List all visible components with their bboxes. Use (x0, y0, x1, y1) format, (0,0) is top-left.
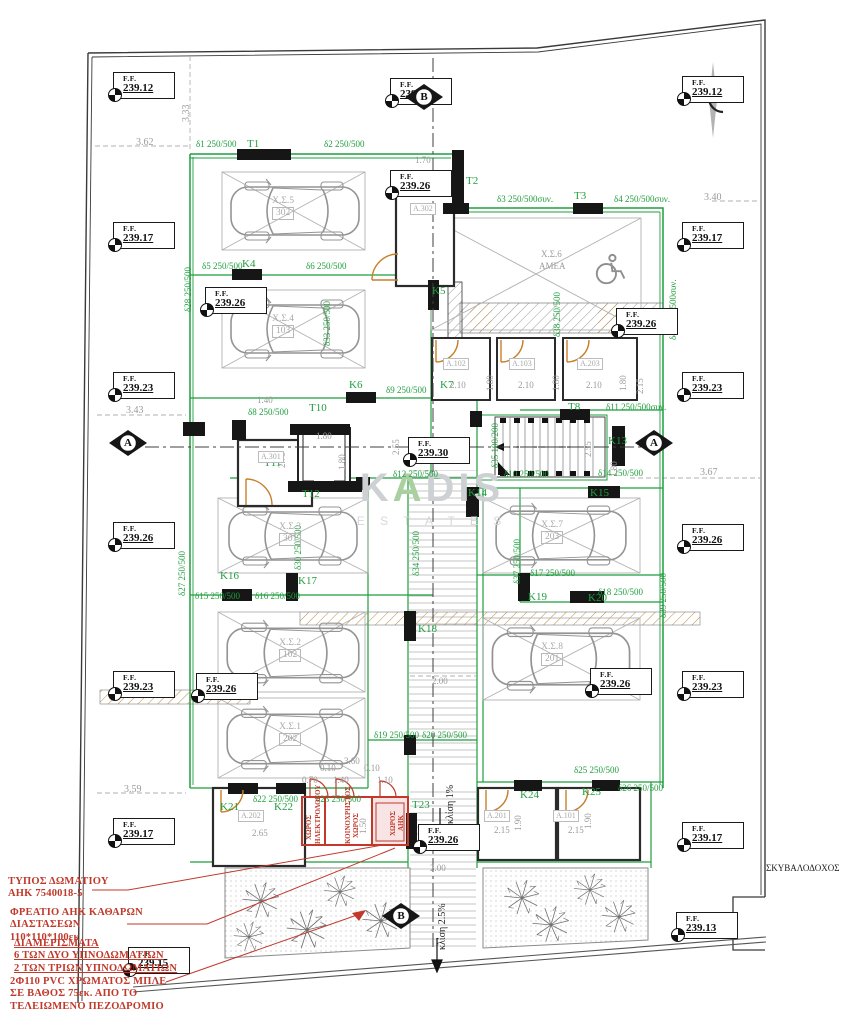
plan-text: ΣΚΥΒΑΛΟΔΟΧΟΣ (766, 864, 840, 873)
plan-text: K22 (274, 802, 293, 813)
ff-value: 239.12 (692, 87, 722, 99)
plan-text: δ1 250/500 (196, 140, 237, 149)
plan-text: 1.80 (316, 432, 332, 441)
section-marker-letter: B (397, 910, 404, 922)
ff-marker-text: F.F. 239.12 (692, 79, 722, 98)
plan-text: 2.55 (584, 441, 593, 457)
red-annotation-line: ΑΗΚ 7540018-5 (8, 888, 109, 900)
ff-elevation-marker: F.F. 239.23 (682, 671, 744, 698)
ff-elevation-marker: F.F. 239.30 (408, 437, 470, 464)
ff-elevation-marker: F.F. 239.17 (682, 222, 744, 249)
ff-elevation-marker: F.F. 239.17 (113, 222, 175, 249)
ff-marker-text: F.F. 239.23 (692, 375, 722, 394)
ff-marker-text: F.F. 239.12 (123, 75, 153, 94)
red-annotation-line: ΔΙΑΣΤΑΣΕΩΝ (10, 919, 143, 931)
plan-text: δ4 250/500συν. (614, 195, 670, 204)
plan-text: K13 (608, 436, 627, 447)
plan-text: δ6 250/500 (306, 262, 347, 271)
plan-text: ΚΟΙΝΟΧΡΗΣΤΟΣ (345, 786, 352, 844)
ff-elevation-marker: F.F. 239.12 (682, 76, 744, 103)
plan-text: δ5 250/500 (202, 262, 243, 271)
plan-text: 1.90 (584, 813, 593, 829)
plan-text: δ17 250/500 (530, 569, 575, 578)
parking-space-label: Χ.Σ.7 203 (541, 520, 563, 544)
plan-text: 0.70 (302, 776, 318, 785)
red-annotation-line: 6 ΤΩΝ ΔΥΟ ΥΠΝΟΔΩΜΑΤΙΩΝ (14, 950, 177, 962)
plan-text: 0.10 (364, 764, 380, 773)
ff-value: 239.23 (692, 383, 722, 395)
ff-marker-text: F.F. 239.30 (418, 440, 448, 459)
plan-text: 2.00 (432, 677, 448, 686)
plan-text: 3.59 (124, 785, 142, 795)
plan-text: δ12 250/500 (393, 470, 438, 479)
plan-text: T10 (309, 403, 327, 414)
plan-text: δ27 250/500 (178, 551, 187, 596)
plan-text: ΑΜΕΑ (539, 262, 566, 271)
ff-marker-text: F.F. 239.13 (686, 915, 716, 934)
plan-text: ΑΗΚ (398, 815, 405, 831)
plan-text: 1.50 (359, 818, 368, 834)
ff-value: 239.17 (692, 833, 722, 845)
plan-text: K16 (220, 571, 239, 582)
plan-text: κλίση 1% (446, 785, 456, 824)
ff-elevation-marker: F.F. 239.26 (616, 308, 678, 335)
ff-value: 239.12 (123, 83, 153, 95)
ff-elevation-marker: F.F. 239.26 (682, 524, 744, 551)
plan-text: δ38 250/500 (553, 292, 562, 337)
plan-text: 2.10 (450, 381, 466, 390)
survey-point-icon (108, 687, 122, 701)
room-label: A.202 (238, 810, 264, 822)
ff-value: 239.23 (123, 383, 153, 395)
plan-text: δ2 250/500 (324, 140, 365, 149)
parking-space-label: Χ.Σ.8 201 (541, 642, 563, 666)
plan-text: κλίση 2.5% (438, 903, 448, 950)
parking-space-number: 301 (279, 533, 301, 545)
ff-value: 239.17 (123, 829, 153, 841)
plan-text: ΧΩΡΟΣ (353, 813, 360, 838)
plan-text: 3.33 (182, 105, 192, 123)
plan-text: K15 (590, 488, 609, 499)
plan-text: K4 (242, 259, 255, 270)
survey-point-icon (677, 238, 691, 252)
parking-space-number: 202 (279, 733, 301, 745)
plan-text: 3.62 (136, 138, 154, 148)
section-marker-letter: A (650, 437, 658, 449)
ff-elevation-marker: F.F. 239.17 (682, 822, 744, 849)
red-annotation-line: 2Φ110 PVC ΧΡΩΜΑΤΟΣ ΜΠΛΕ (10, 976, 167, 988)
room-label: A.102 (443, 358, 469, 370)
plan-text: δ33 250/500 (323, 301, 332, 346)
plan-text: 3.43 (126, 406, 144, 416)
plan-text: ΧΩΡΟΣ (306, 815, 313, 840)
plan-text: T1 (247, 139, 259, 150)
section-marker: A (634, 426, 674, 460)
parking-space-name: Χ.Σ.7 (541, 520, 563, 530)
section-marker: B (404, 80, 444, 114)
room-label: A.201 (484, 810, 510, 822)
parking-space-name: Χ.Σ.3 (279, 522, 301, 532)
plan-text: δ35 100/200 (491, 423, 500, 468)
survey-point-icon (403, 453, 417, 467)
parking-space-number: 102 (279, 649, 301, 661)
ff-marker-text: F.F. 239.26 (123, 525, 153, 544)
plan-text: δ11 250/500συν. (606, 403, 666, 412)
plan-text: T23 (412, 800, 430, 811)
room-label: A.301 (258, 451, 284, 463)
ff-value: 239.26 (428, 835, 458, 847)
parking-space-name: Χ.Σ.4 (272, 314, 294, 324)
survey-point-icon (677, 388, 691, 402)
plan-text: 3.60 (344, 757, 360, 766)
plan-text: K24 (520, 790, 539, 801)
red-annotation-line: ΣΕ ΒΑΘΟΣ 75εκ. ΑΠΟ ΤΟ (10, 988, 167, 1000)
plan-text: δ19 250/500 (374, 731, 419, 740)
ff-marker-text: F.F. 239.23 (123, 375, 153, 394)
plan-text: K5 (432, 286, 445, 297)
survey-point-icon (671, 928, 685, 942)
ff-elevation-marker: F.F. 239.26 (418, 824, 480, 851)
plan-text: δ28 250/500 (184, 267, 193, 312)
parking-space-label: Χ.Σ.1 202 (279, 722, 301, 746)
plan-text: 1.70 (415, 156, 431, 165)
plan-text: δ20 250/500 (422, 731, 467, 740)
plan-text: 3.40 (704, 193, 722, 203)
ff-marker-text: F.F. 239.26 (206, 676, 236, 695)
section-marker-letter: B (420, 91, 427, 103)
room-label: A.103 (509, 358, 535, 370)
survey-point-icon (677, 838, 691, 852)
parking-space-name: Χ.Σ.5 (272, 196, 294, 206)
parking-space-number: 302 (272, 207, 294, 219)
plan-text: K18 (418, 624, 437, 635)
plan-text: 2.10 (586, 381, 602, 390)
survey-point-icon (200, 303, 214, 317)
plan-text: 1.40 (333, 776, 349, 785)
plan-text: 2.10 (518, 381, 534, 390)
room-label: A.203 (577, 358, 603, 370)
plan-text: δ25 250/500 (574, 766, 619, 775)
red-annotation-line: 2 ΤΩΝ ΤΡΙΩΝ ΥΠΝΟΔΩΜΑΤΙΩΝ (14, 963, 177, 975)
survey-point-icon (108, 238, 122, 252)
ff-marker-text: F.F. 239.26 (215, 290, 245, 309)
plan-text: 2.65 (252, 829, 268, 838)
plan-text: δ14 250/500 (598, 469, 643, 478)
ff-marker-text: F.F. 239.26 (626, 311, 656, 330)
survey-point-icon (108, 834, 122, 848)
ff-marker-text: F.F. 239.26 (692, 527, 722, 546)
survey-point-icon (191, 689, 205, 703)
plan-text: 1.10 (377, 776, 393, 785)
ff-elevation-marker: F.F. 239.17 (113, 818, 175, 845)
plan-text: 1.80 (610, 461, 619, 477)
plan-text: 1.80 (619, 375, 628, 391)
plan-text: 2.00 (430, 864, 446, 873)
survey-point-icon (108, 388, 122, 402)
red-annotation-line: ΤΕΛΕΙΩΜΕΝΟ ΠΕΖΟΔΡΟΜΙΟ (10, 1001, 167, 1013)
parking-space-name: Χ.Σ.1 (279, 722, 301, 732)
survey-point-icon (677, 687, 691, 701)
plan-text: δ39 250/500 (659, 573, 668, 618)
plan-text: δ26 250/500 (618, 784, 663, 793)
plan-text: δ23 250/500 (316, 795, 361, 804)
ff-marker-text: F.F. 239.23 (123, 674, 153, 693)
red-annotation-line: ΔΙΑΜΕΡΙΣΜΑΤΑ (14, 938, 177, 950)
survey-point-icon (677, 92, 691, 106)
plan-text: ΗΛΕΚΤΡΟΛΟΓΟΥ (315, 785, 322, 844)
survey-point-icon (385, 94, 399, 108)
ff-elevation-marker: F.F. 239.13 (676, 912, 738, 939)
ff-marker-text: F.F. 239.17 (692, 825, 722, 844)
ff-value: 239.23 (123, 682, 153, 694)
plan-text: 2.15 (636, 378, 645, 394)
survey-point-icon (413, 840, 427, 854)
plan-text: ΧΩΡΟΣ (390, 811, 397, 836)
ff-elevation-marker: F.F. 239.26 (113, 522, 175, 549)
parking-space-number: 203 (541, 531, 563, 543)
ff-elevation-marker: F.F. 239.23 (682, 372, 744, 399)
plan-text: δ15 250/500 (195, 592, 240, 601)
plan-text: K6 (349, 380, 362, 391)
ff-value: 239.23 (692, 682, 722, 694)
plan-text: δ16 250/500 (255, 592, 300, 601)
ff-value: 239.26 (206, 684, 236, 696)
plan-text: 3.67 (700, 468, 718, 478)
parking-space-label: Χ.Σ.2 102 (279, 638, 301, 662)
survey-point-icon (611, 324, 625, 338)
parking-space-name: Χ.Σ.2 (279, 638, 301, 648)
floor-plan-canvas: KADIS E S T A T E S δ1 250/500T1δ2 250/5… (0, 0, 862, 1024)
survey-point-icon (677, 540, 691, 554)
plan-text: Χ.Σ.6 (541, 250, 562, 259)
ff-value: 239.26 (600, 679, 630, 691)
section-marker: B (381, 899, 421, 933)
plan-text: 2.55 (392, 439, 401, 455)
ff-value: 239.26 (215, 298, 245, 310)
parking-space-label: Χ.Σ.3 301 (279, 522, 301, 546)
plan-text: δ8 250/500 (248, 408, 289, 417)
ff-value: 239.17 (692, 233, 722, 245)
parking-space-number: 201 (541, 653, 563, 665)
survey-point-icon (385, 186, 399, 200)
ff-value: 239.30 (418, 448, 448, 460)
ff-elevation-marker: F.F. 239.26 (205, 287, 267, 314)
red-annotation-line: ΦΡΕΑΤΙΟ ΑΗΚ ΚΑΘΑΡΩΝ (10, 907, 143, 919)
plan-text: K25 (582, 787, 601, 798)
plan-text: K20 (588, 593, 607, 604)
ff-marker-text: F.F. 239.17 (123, 821, 153, 840)
ff-elevation-marker: F.F. 239.26 (196, 673, 258, 700)
plan-text: δ34 250/500 (412, 531, 421, 576)
ff-marker-text: F.F. 239.26 (428, 827, 458, 846)
parking-space-label: Χ.Σ.5 302 (272, 196, 294, 220)
ff-value: 239.26 (692, 535, 722, 547)
plan-text: T12 (302, 489, 320, 500)
ff-value: 239.26 (626, 319, 656, 331)
plan-text: T2 (466, 176, 478, 187)
ff-marker-text: F.F. 239.26 (600, 671, 630, 690)
ff-value: 239.26 (123, 533, 153, 545)
plan-text: 2.15 (568, 826, 584, 835)
ff-elevation-marker: F.F. 239.23 (113, 372, 175, 399)
plan-text: K19 (528, 592, 547, 603)
plan-text: K21 (220, 802, 239, 813)
room-label: A.302 (410, 203, 436, 215)
plan-text: δ37 250/500 (513, 539, 522, 584)
ff-marker-text: F.F. 239.17 (123, 225, 153, 244)
plan-text: δ9 250/500 (386, 386, 427, 395)
red-annotation-line: ΤΥΠΟΣ ΔΩΜΑΤΙΟΥ (8, 876, 109, 888)
section-marker-letter: A (124, 437, 132, 449)
plan-text: 2.15 (494, 826, 510, 835)
plan-text: 1.90 (514, 815, 523, 831)
plan-text: 1.40 (257, 396, 273, 405)
parking-space-name: Χ.Σ.8 (541, 642, 563, 652)
plan-text: K17 (298, 576, 317, 587)
ff-elevation-marker: F.F. 239.26 (390, 170, 452, 197)
ff-marker-text: F.F. 239.23 (692, 674, 722, 693)
plan-text: δ3 250/500συν. (497, 195, 553, 204)
plan-text: 0.10 (320, 764, 336, 773)
plan-text: K14 (468, 488, 487, 499)
plan-text: T3 (574, 191, 586, 202)
ff-marker-text: F.F. 239.26 (400, 173, 430, 192)
room-label: A.101 (553, 810, 579, 822)
ff-elevation-marker: F.F. 239.26 (590, 668, 652, 695)
section-marker: A (108, 426, 148, 460)
red-annotation: ΤΥΠΟΣ ΔΩΜΑΤΙΟΥΑΗΚ 7540018-5 (8, 876, 109, 901)
survey-point-icon (108, 88, 122, 102)
plan-text: 1.80 (552, 375, 561, 391)
ff-value: 239.13 (686, 923, 716, 935)
label-layer: δ1 250/500T1δ2 250/500δ3 250/500συν.T3δ4… (0, 0, 862, 1024)
plan-text: T8 (568, 402, 580, 413)
red-annotation: ΔΙΑΜΕΡΙΣΜΑΤΑ6 ΤΩΝ ΔΥΟ ΥΠΝΟΔΩΜΑΤΙΩΝ2 ΤΩΝ … (14, 938, 177, 975)
ff-value: 239.26 (400, 181, 430, 193)
plan-text: δ10 250/500 (504, 470, 549, 479)
plan-text: 1.80 (338, 454, 347, 470)
parking-space-label: Χ.Σ.4 103 (272, 314, 294, 338)
ff-elevation-marker: F.F. 239.23 (113, 671, 175, 698)
plan-text: 1.80 (486, 375, 495, 391)
parking-space-number: 103 (272, 325, 294, 337)
red-annotation: 2Φ110 PVC ΧΡΩΜΑΤΟΣ ΜΠΛΕΣΕ ΒΑΘΟΣ 75εκ. ΑΠ… (10, 976, 167, 1013)
survey-point-icon (585, 684, 599, 698)
survey-point-icon (108, 538, 122, 552)
ff-value: 239.17 (123, 233, 153, 245)
ff-elevation-marker: F.F. 239.12 (113, 72, 175, 99)
ff-marker-text: F.F. 239.17 (692, 225, 722, 244)
